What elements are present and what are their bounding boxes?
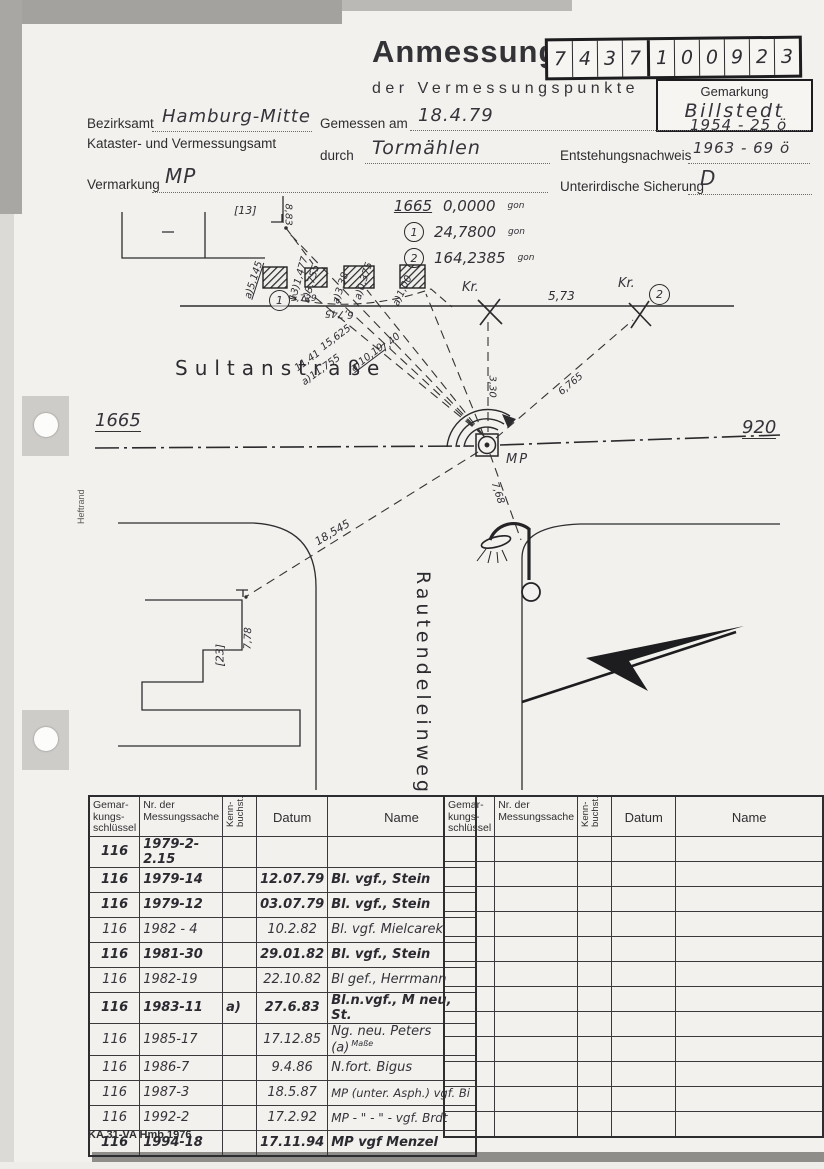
angle-ref: 1665	[393, 197, 433, 215]
baseline-1665-920	[95, 435, 780, 448]
point-920-label: 920	[742, 417, 776, 439]
building-outline-23	[118, 590, 300, 746]
sicherung-value: D	[700, 166, 716, 190]
gemessen-label: Gemessen am	[320, 116, 408, 131]
code-digit: 7	[623, 40, 650, 76]
survey-sketch: 1665 0,0000gon 1 24,7800gon 2 164,2385go…	[0, 190, 824, 795]
empty-table-row	[444, 836, 823, 861]
code-digit: 7	[548, 41, 573, 77]
empty-table-row	[444, 1061, 823, 1086]
col-header-kennbuchst: Kenn- buchst.	[223, 796, 257, 836]
empty-table-row	[444, 1011, 823, 1036]
building-outline-13	[122, 196, 283, 258]
empty-table-row	[444, 886, 823, 911]
bezirksamt-label: Bezirksamt	[87, 116, 154, 131]
angle-ref-circled: 2	[404, 248, 424, 268]
code-digit: 3	[775, 39, 799, 75]
empty-table-row	[444, 861, 823, 886]
mp-marker	[476, 434, 498, 456]
table-row: 1161979-1203.07.79Bl. vgf., Stein	[89, 892, 476, 917]
empty-table-row	[444, 986, 823, 1011]
measurement-5-73: 5,73	[548, 289, 575, 303]
page-title: Anmessung	[372, 34, 558, 70]
field-line	[365, 162, 550, 164]
table-row: 1161979-1412.07.79Bl. vgf., Stein	[89, 867, 476, 892]
table-row: 1161979-2-2.15	[89, 836, 476, 867]
field-line	[688, 162, 810, 164]
empty-table-row	[444, 1111, 823, 1137]
table-row: 1161982-1922.10.82Bl gef., Herrmann	[89, 967, 476, 992]
table-row: 1161992-217.2.92MP - " - " - vgf. Brdt	[89, 1105, 476, 1130]
point-number-code-boxes: 7 4 3 7 1 0 0 9 2 3	[545, 36, 802, 81]
angle-value: 0,0000	[443, 197, 496, 215]
mp-label: MP	[506, 452, 529, 467]
durch-value: Tormählen	[372, 137, 481, 159]
empty-table-row	[444, 936, 823, 961]
table-row: 1161985-1717.12.85Ng. neu. Peters (a)Maß…	[89, 1023, 476, 1055]
vermarkung-value: MP	[165, 164, 196, 188]
house-number-13: [13]	[234, 204, 257, 217]
measurement-8-83: 8,83	[283, 204, 294, 226]
col-header-gemarkungsschluessel: Gemar- kungs- schlüssel	[444, 796, 495, 836]
empty-table-row	[444, 911, 823, 936]
house-number-23: [23]	[214, 644, 227, 667]
code-digit: 0	[675, 40, 700, 76]
table-row: 1161983-11a)27.6.83Bl.n.vgf., M neu, St.	[89, 992, 476, 1023]
empty-table-row	[444, 1086, 823, 1111]
code-digit: 2	[750, 39, 775, 75]
form-number: KA 31-VA Hmb 1976	[88, 1129, 192, 1141]
point-1665-label: 1665	[95, 410, 141, 432]
col-header-name: Name	[676, 796, 823, 836]
table-row: 1161981-3029.01.82Bl. vgf., Stein	[89, 942, 476, 967]
col-header-kennbuchst: Kenn- buchst.	[578, 796, 612, 836]
kr-mark-2	[629, 301, 651, 328]
table-row: 1161987-318.5.87MP (unter. Asph.) vgf. B…	[89, 1080, 476, 1105]
measurement-7-78: 7,78	[243, 627, 255, 650]
heftrand-label: Heftrand	[76, 489, 86, 524]
gemarkung-label: Gemarkung	[658, 84, 811, 99]
angle-entry: 2 164,2385gon	[393, 245, 535, 271]
code-digit: 0	[700, 39, 725, 75]
scan-edge-left	[0, 0, 22, 214]
page-subtitle: der Vermessungspunkte	[372, 80, 639, 98]
measurement-3-30: 3,30	[487, 376, 498, 398]
angle-unit: gon	[518, 253, 535, 263]
bezirksamt-value: Hamburg-Mitte	[162, 106, 311, 127]
angle-entry: 1 24,7800gon	[393, 219, 535, 245]
name-note: Maße	[351, 1039, 373, 1048]
scanned-survey-form: Anmessung der Vermessungspunkte 7 4 3 7 …	[0, 0, 824, 1169]
field-line	[152, 130, 312, 132]
angle-arcs	[447, 410, 516, 447]
durch-label: durch	[320, 148, 354, 163]
angle-unit: gon	[508, 201, 525, 211]
scan-edge-top-2	[342, 0, 572, 11]
code-digit: 9	[725, 39, 750, 75]
amt-label: Kataster- und Vermessungsamt	[87, 136, 276, 151]
point-circle-1: 1	[269, 290, 290, 311]
angle-value: 24,7800	[434, 223, 496, 241]
code-digit: 1	[650, 40, 675, 76]
col-header-datum: Datum	[612, 796, 676, 836]
entstehung-value-top: 1954 - 25 ö	[690, 116, 787, 134]
point-circle-2: 2	[649, 284, 670, 305]
measurement-6-745: 6,745	[325, 307, 354, 319]
col-header-datum: Datum	[257, 796, 328, 836]
scan-edge-top	[0, 0, 342, 24]
kr-label-2: Kr.	[618, 276, 635, 291]
angle-ref-circled: 1	[404, 222, 424, 242]
col-header-messungssache: Nr. der Messungssache	[140, 796, 223, 836]
entstehung-value: 1963 - 69 ö	[693, 139, 790, 157]
angle-entry: 1665 0,0000gon	[393, 193, 535, 219]
col-header-messungssache: Nr. der Messungssache	[495, 796, 578, 836]
empty-table-row	[444, 1036, 823, 1061]
code-digit: 3	[598, 41, 623, 77]
code-digit: 4	[573, 41, 598, 77]
table-row: 1161986-79.4.86N.fort. Bigus	[89, 1055, 476, 1080]
measurement-log-table-right: Gemar- kungs- schlüssel Nr. der Messungs…	[443, 795, 824, 1138]
scan-edge-bottom-2	[0, 1162, 824, 1169]
corner-point-2	[244, 595, 247, 598]
street-name-rautendeleinweg: Rautendeleinweg	[412, 571, 434, 796]
street-lamp-icon	[477, 524, 540, 601]
angle-list: 1665 0,0000gon 1 24,7800gon 2 164,2385go…	[393, 193, 535, 271]
col-header-gemarkungsschluessel: Gemar- kungs- schlüssel	[89, 796, 140, 836]
north-arrow-icon	[522, 626, 744, 702]
angle-unit: gon	[508, 227, 525, 237]
gemessen-value: 18.4.79	[418, 105, 494, 126]
measurement-5-729: 5,729	[291, 294, 317, 304]
empty-table-row	[444, 961, 823, 986]
kr-label-1: Kr.	[462, 280, 479, 295]
table-row: 1161982 - 410.2.82Bl. vgf. Mielcarek	[89, 917, 476, 942]
measurement-log-table-left: Gemar- kungs- schlüssel Nr. der Messungs…	[88, 795, 477, 1157]
angle-value: 164,2385	[434, 249, 506, 267]
entstehung-label: Entstehungsnachweis	[560, 148, 691, 163]
kr-mark-1	[478, 299, 502, 325]
